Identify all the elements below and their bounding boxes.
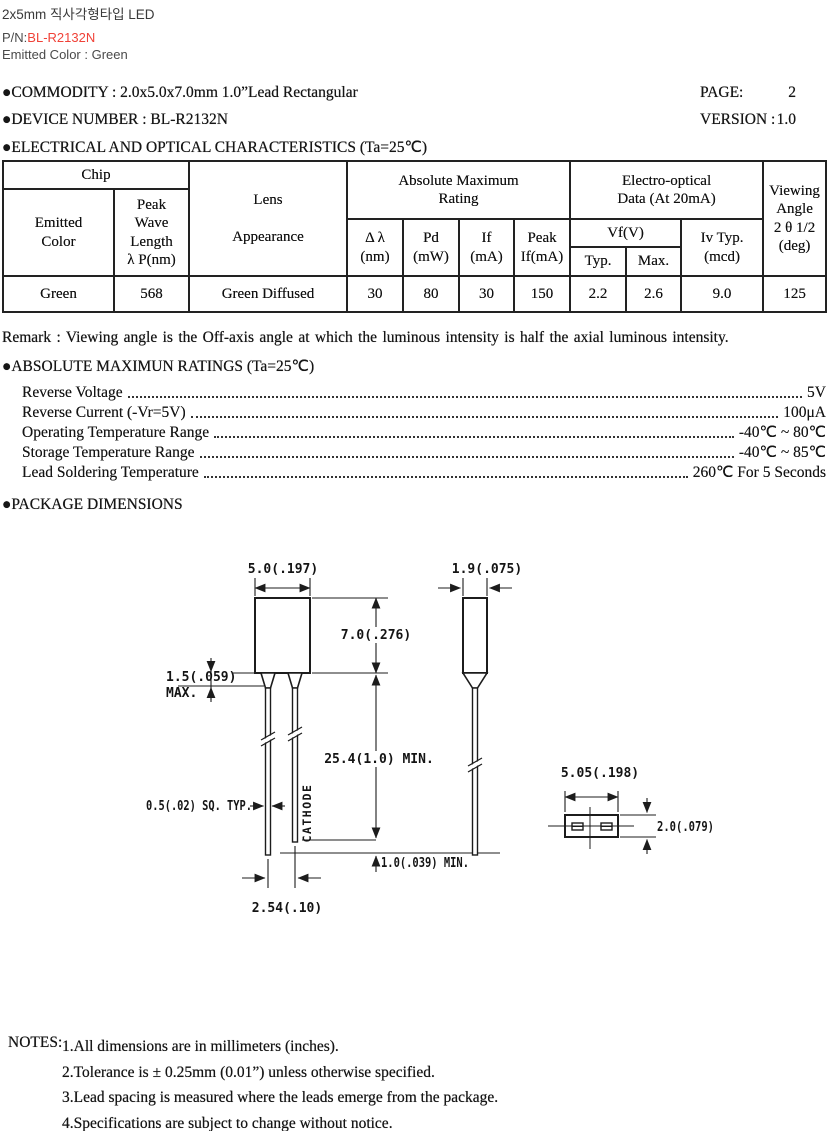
version-indicator: VERSION : 1.0 [700,111,796,129]
bottom-view: 5.05(.198) 2.0(.079) [548,766,714,854]
korean-title: 2x5mm 직사각형타입 LED [2,3,155,23]
electro-optical-title: ●ELECTRICAL AND OPTICAL CHARACTERISTICS … [2,138,427,157]
version-label: VERSION : [700,111,775,129]
cathode-label: CATHODE [300,784,314,843]
viewing-angle-header-cell: Viewing Angle 2 θ 1/2 (deg) [763,161,826,276]
rating-label: Storage Temperature Range [22,444,195,462]
rating-value: -40℃ ~ 80℃ [739,423,826,442]
standoff-max-label: MAX. [166,686,197,701]
side-width-dim-label: 1.9(.075) [452,562,522,577]
iv-header-cell: Iv Typ. (mcd) [681,219,763,276]
cell-delta-lambda: 30 [347,276,403,312]
anode-lead [266,688,271,855]
pn-value: BL-R2132N [27,30,95,45]
datasheet-page: 2x5mm 직사각형타입 LED P/N:BL-R2132N Emitted C… [0,0,828,1131]
front-height-dim-label: 7.0(.276) [341,628,411,643]
dot-leader [214,436,734,438]
version-value: 1.0 [777,111,796,129]
cell-vf-typ: 2.2 [570,276,626,312]
device-number-line: ●DEVICE NUMBER : BL-R2132N [2,111,228,129]
rating-label: Reverse Voltage [22,384,123,402]
rating-row: Storage Temperature Range -40℃ ~ 85℃ [22,442,826,462]
rating-value: 260℃ For 5 Seconds [693,463,826,482]
pn-label: P/N: [2,30,27,45]
cell-peak-if: 150 [514,276,570,312]
rating-row: Reverse Voltage 5V [22,382,826,402]
note-item: 2.Tolerance is ± 0.25mm (0.01”) unless o… [62,1060,802,1086]
notes-list: 1.All dimensions are in millimeters (inc… [62,1034,802,1131]
electro-optical-header-cell: Electro-optical Data (At 20mA) [570,161,763,219]
rating-value: -40℃ ~ 85℃ [739,443,826,462]
lead-square-dim-label: 0.5(.02) SQ. TYP. [146,799,252,814]
abs-max-ratings-title: ●ABSOLUTE MAXIMUN RATINGS (Ta=25℃) [2,357,314,376]
dot-leader [191,416,779,418]
rating-row: Lead Soldering Temperature 260℃ For 5 Se… [22,462,826,482]
dot-leader [204,476,688,478]
characteristics-table: Chip Lens Appearance Absolute Maximum Ra… [2,160,827,313]
cell-if: 30 [459,276,514,312]
cell-vf-max: 2.6 [626,276,681,312]
part-number-line: P/N:BL-R2132N [2,30,95,45]
commodity-line: ●COMMODITY : 2.0x5.0x7.0mm 1.0”Lead Rect… [2,84,358,102]
lens-header-cell: Lens Appearance [189,161,347,276]
rating-row: Operating Temperature Range -40℃ ~ 80℃ [22,422,826,442]
bottom-height-dim-label: 2.0(.079) [657,820,714,835]
ratings-list: Reverse Voltage 5V Reverse Current (-Vr=… [22,382,826,482]
side-view: 1.9(.075) [438,562,522,855]
standoff-dim-label: 1.5(.059) [166,670,236,685]
peak-if-header-cell: Peak If(mA) [514,219,570,276]
cell-viewing: 125 [763,276,826,312]
note-item: 4.Specifications are subject to change w… [62,1111,802,1131]
vf-header-cell: Vf(V) [570,219,681,247]
rating-row: Reverse Current (-Vr=5V) 100μA [22,402,826,422]
rating-value: 5V [807,384,826,402]
cathode-lead [293,688,298,842]
package-drawing: 5.0(.197) 7.0(.276) CATHODE [0,520,828,930]
lead-length-dim-label: 25.4(1.0) MIN. [324,752,434,767]
package-dimensions-title: ●PACKAGE DIMENSIONS [2,496,183,514]
rating-label: Lead Soldering Temperature [22,464,199,482]
front-width-dim-label: 5.0(.197) [248,562,318,577]
led-body-front [255,598,310,673]
vf-max-header-cell: Max. [626,247,681,276]
led-body-side [463,598,487,673]
side-lead-taper [463,673,487,688]
lead-pitch-dim-label: 2.54(.10) [252,901,322,916]
table-row: Green 568 Green Diffused 30 80 30 150 2.… [3,276,826,312]
cell-pd: 80 [403,276,459,312]
rating-label: Reverse Current (-Vr=5V) [22,404,186,422]
cell-emitted-color: Green [3,276,114,312]
cell-lens: Green Diffused [189,276,347,312]
notes-label: NOTES: [8,1034,62,1052]
vf-typ-header-cell: Typ. [570,247,626,276]
if-header-cell: If (mA) [459,219,514,276]
remark-text: Remark : Viewing angle is the Off-axis a… [2,329,826,347]
abs-max-header-cell: Absolute Maximum Rating [347,161,570,219]
pd-header-cell: Pd (mW) [403,219,459,276]
chip-header-cell: Chip [3,161,189,189]
lead-tip-dim-label: 1.0(.039) MIN. [381,856,469,871]
front-view: 5.0(.197) 7.0(.276) CATHODE [146,562,500,916]
cell-peak-wave: 568 [114,276,189,312]
cell-iv: 9.0 [681,276,763,312]
cathode-lead-taper [288,673,302,688]
delta-lambda-header-cell: Δ λ (nm) [347,219,403,276]
page-label: PAGE: [700,84,743,102]
peak-wavelength-header-cell: Peak Wave Length λ P(nm) [114,189,189,276]
page-value: 2 [788,84,796,102]
page-indicator: PAGE: 2 [700,84,796,102]
note-item: 1.All dimensions are in millimeters (inc… [62,1034,802,1060]
emitted-color-header-cell: Emitted Color [3,189,114,276]
rating-value: 100μA [783,404,826,422]
note-item: 3.Lead spacing is measured where the lea… [62,1085,802,1111]
dot-leader [128,396,802,398]
emitted-color-line: Emitted Color : Green [2,47,128,62]
dot-leader [200,456,734,458]
bottom-width-dim-label: 5.05(.198) [561,766,639,781]
rating-label: Operating Temperature Range [22,424,209,442]
side-lead [473,688,478,855]
